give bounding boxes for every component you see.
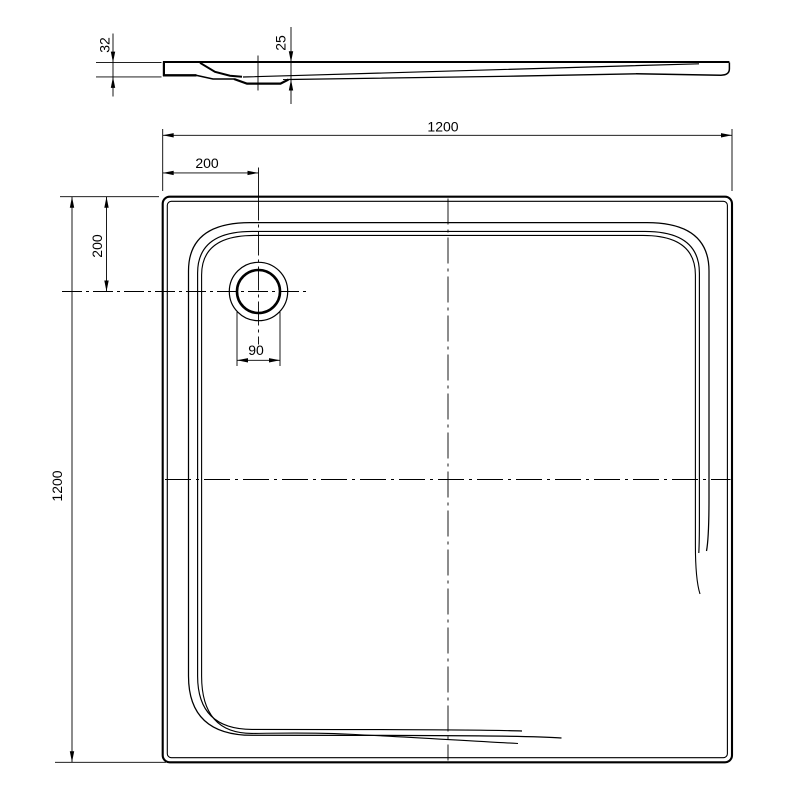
- dim-drain-diameter-label: 90: [248, 342, 264, 358]
- dim200h-arrow-right: [248, 171, 259, 175]
- shower-tray-drawing: 32 25 1200 200: [0, 0, 795, 795]
- dim-drain-depth-label: 25: [273, 35, 289, 51]
- dim-overall-length-label: 1200: [49, 470, 65, 501]
- dim1200w-arrow-right: [721, 133, 732, 137]
- dim-drain-offset-horizontal-label: 200: [195, 155, 219, 171]
- dim-overall-width-label: 1200: [427, 119, 458, 135]
- dim90-arrow-left: [237, 358, 248, 362]
- technical-drawing-canvas: 32 25 1200 200: [0, 0, 795, 795]
- dim-drain-offset-vertical-label: 200: [89, 234, 105, 258]
- section-drain-pocket: [234, 79, 289, 84]
- dim200v-arrow-up: [104, 197, 108, 208]
- dim1200l-arrow-down: [70, 751, 74, 762]
- dim32-arrow-up: [111, 77, 115, 88]
- plan-view: 1200 200 1200 200 90: [49, 119, 732, 763]
- dim-tray-height-label: 32: [97, 37, 113, 53]
- dim200v-arrow-down: [104, 281, 108, 292]
- basin-contour-inner: [202, 235, 700, 743]
- dim25-arrow-down: [289, 51, 293, 62]
- section-view: 32 25: [96, 27, 729, 104]
- dim200h-arrow-left: [163, 171, 174, 175]
- section-floor-taper-line: [243, 64, 699, 77]
- section-rim-inner-slope: [200, 63, 242, 77]
- dim1200l-arrow-up: [70, 197, 74, 208]
- dim90-arrow-right: [269, 358, 280, 362]
- basin-contour-outer: [189, 223, 710, 738]
- dim1200w-arrow-left: [163, 133, 174, 137]
- dim25-arrow-up: [289, 80, 293, 91]
